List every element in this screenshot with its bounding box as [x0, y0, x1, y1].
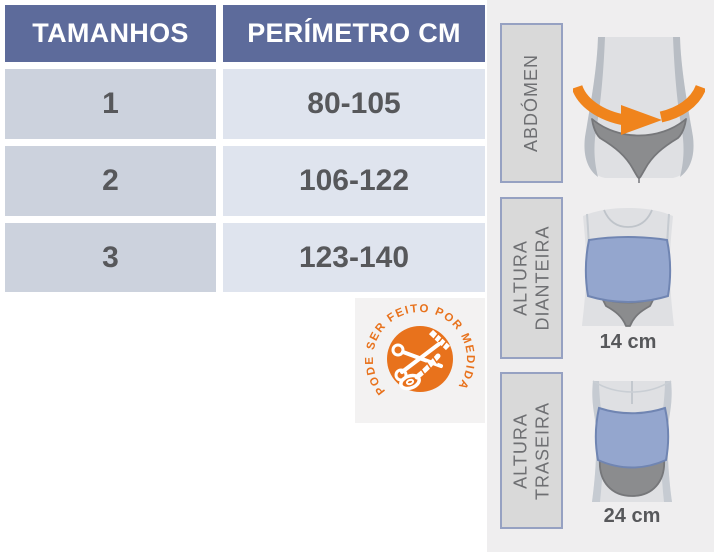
column-header-sizes: TAMANHOS — [5, 5, 216, 62]
front-height-value: 14 cm — [577, 331, 679, 354]
back-belt — [596, 408, 668, 468]
label-box-back-height: ALTURA TRASEIRA — [500, 372, 563, 529]
back-height-illustration — [586, 378, 678, 504]
size-guide: TAMANHOS PERÍMETRO CM 1 80-105 2 106-122… — [0, 0, 720, 556]
measurement-panel: ABDÓMEN ALTURA DIANTEIRA — [487, 0, 714, 552]
back-height-value: 24 cm — [586, 505, 678, 528]
front-belt — [586, 237, 670, 302]
label-box-front-height: ALTURA DIANTEIRA — [500, 197, 563, 359]
abdomen-illustration — [573, 33, 705, 183]
table-cell-size-1: 1 — [5, 69, 216, 139]
made-to-measure-badge: PODE SER FEITO POR MEDIDA — [355, 298, 485, 423]
label-front-height: ALTURA DIANTEIRA — [510, 225, 553, 330]
table-cell-size-3: 3 — [5, 223, 216, 292]
label-back-height: ALTURA TRASEIRA — [510, 401, 553, 499]
front-height-illustration — [577, 206, 679, 328]
table-cell-perimeter-3: 123-140 — [223, 223, 485, 292]
label-abdomen: ABDÓMEN — [521, 54, 543, 152]
made-to-measure-badge-graphic: PODE SER FEITO POR MEDIDA — [355, 298, 485, 423]
label-box-abdomen: ABDÓMEN — [500, 23, 563, 183]
table-cell-size-2: 2 — [5, 146, 216, 216]
table-cell-perimeter-2: 106-122 — [223, 146, 485, 216]
table-cell-perimeter-1: 80-105 — [223, 69, 485, 139]
column-header-perimeter: PERÍMETRO CM — [223, 5, 485, 62]
sizes-table: TAMANHOS PERÍMETRO CM 1 80-105 2 106-122… — [5, 5, 485, 292]
